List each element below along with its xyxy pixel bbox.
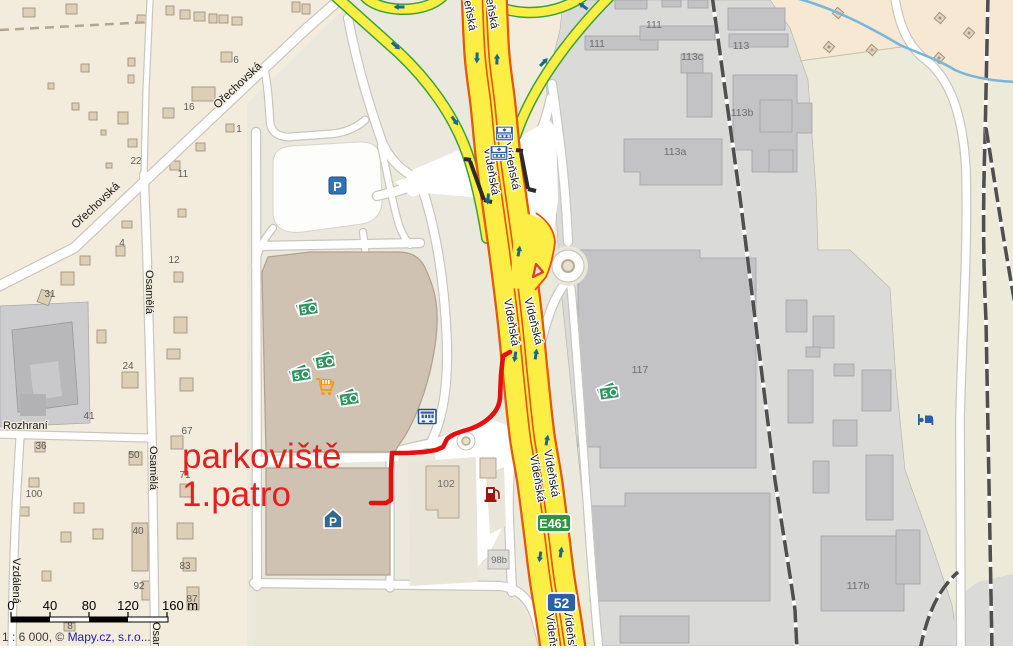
svg-text:16: 16 [183, 102, 195, 113]
svg-text:P: P [333, 179, 342, 194]
svg-text:1: 1 [236, 124, 242, 135]
svg-text:24: 24 [122, 361, 134, 372]
svg-text:98b: 98b [491, 555, 507, 566]
svg-text:50: 50 [128, 450, 140, 461]
svg-text:Osamělá: Osamělá [150, 622, 162, 646]
svg-text:parkoviště: parkoviště [182, 437, 342, 476]
svg-text:40: 40 [132, 526, 144, 537]
svg-text:31: 31 [44, 289, 56, 300]
svg-text:100: 100 [26, 489, 43, 500]
svg-text:1.patro: 1.patro [182, 475, 291, 514]
svg-text:111: 111 [589, 38, 605, 50]
svg-text:Rozhraní: Rozhraní [3, 420, 48, 432]
svg-text:120: 120 [117, 598, 139, 613]
svg-text:11: 11 [178, 169, 189, 180]
svg-text:6: 6 [233, 55, 239, 66]
svg-text:12: 12 [168, 255, 180, 266]
svg-text:1 : 6 000, © Mapy.cz, s.r.o...: 1 : 6 000, © Mapy.cz, s.r.o... [2, 630, 151, 644]
svg-text:102: 102 [437, 478, 455, 490]
svg-text:4: 4 [119, 238, 125, 249]
svg-text:41: 41 [83, 411, 95, 422]
svg-text:160 m: 160 m [162, 598, 198, 613]
svg-text:E461: E461 [539, 517, 568, 531]
svg-text:113a: 113a [664, 146, 687, 158]
svg-text:83: 83 [179, 561, 191, 572]
svg-text:22: 22 [130, 156, 142, 167]
svg-text:67: 67 [181, 426, 193, 437]
svg-text:80: 80 [82, 598, 96, 613]
svg-text:113: 113 [733, 40, 750, 52]
svg-text:Osamělá: Osamělá [147, 446, 159, 491]
svg-text:P: P [329, 515, 337, 529]
svg-text:113c: 113c [681, 51, 703, 63]
svg-text:40: 40 [43, 598, 57, 613]
svg-text:117: 117 [632, 364, 649, 376]
svg-text:0: 0 [7, 598, 14, 613]
svg-text:Osamělá: Osamělá [143, 270, 155, 315]
svg-text:92: 92 [133, 581, 145, 592]
svg-text:111: 111 [646, 19, 662, 31]
svg-text:36: 36 [35, 441, 47, 452]
svg-text:52: 52 [554, 595, 570, 611]
svg-text:113b: 113b [731, 107, 754, 119]
svg-text:117b: 117b [847, 580, 870, 592]
